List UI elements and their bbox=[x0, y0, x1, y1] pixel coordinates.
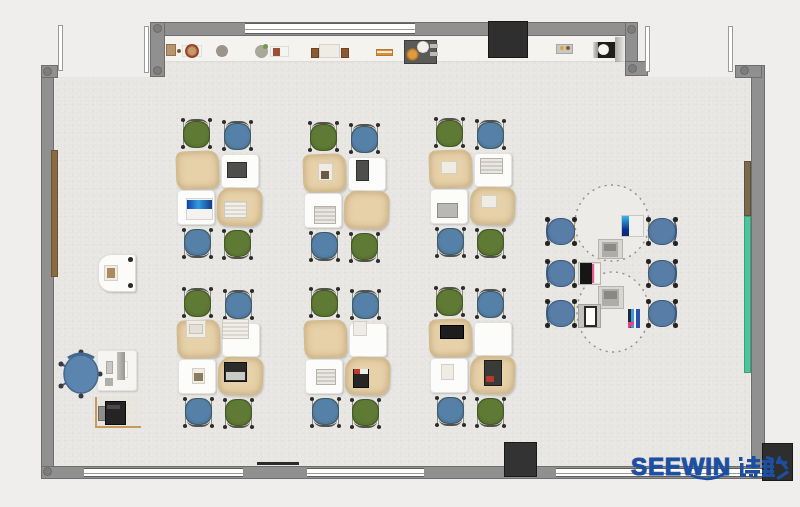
svg-text:SEEWIN: SEEWIN bbox=[631, 453, 731, 480]
